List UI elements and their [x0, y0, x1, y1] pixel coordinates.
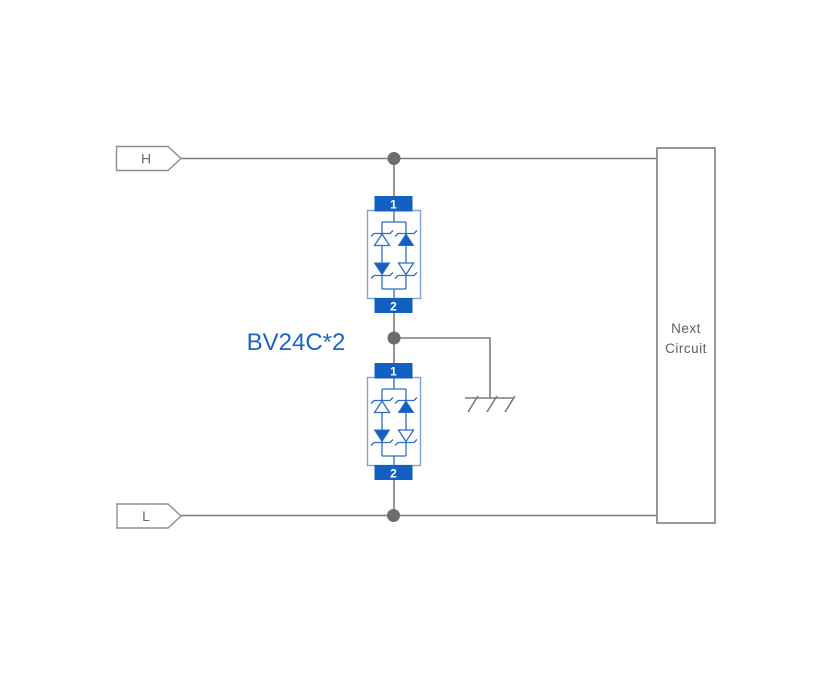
tvs-module-1: [368, 196, 421, 314]
next-circuit-label-line2: Circuit: [665, 341, 707, 356]
earth-ground-icon: [465, 396, 515, 412]
part-number-label: BV24C*2: [247, 329, 346, 356]
next-circuit-label-line1: Next: [671, 321, 701, 336]
junction-dot-middle: [388, 332, 401, 345]
junction-dot-h: [388, 152, 401, 165]
terminal-h-label: H: [141, 151, 151, 167]
junction-dot-l: [387, 509, 400, 522]
circuit-diagram: 1 2 H L Next Circuit BV2: [0, 0, 832, 675]
terminal-l-label: L: [142, 508, 150, 524]
circuit-canvas: 1 2 H L Next Circuit BV2: [0, 0, 832, 675]
tvs-module-2: [368, 363, 421, 481]
